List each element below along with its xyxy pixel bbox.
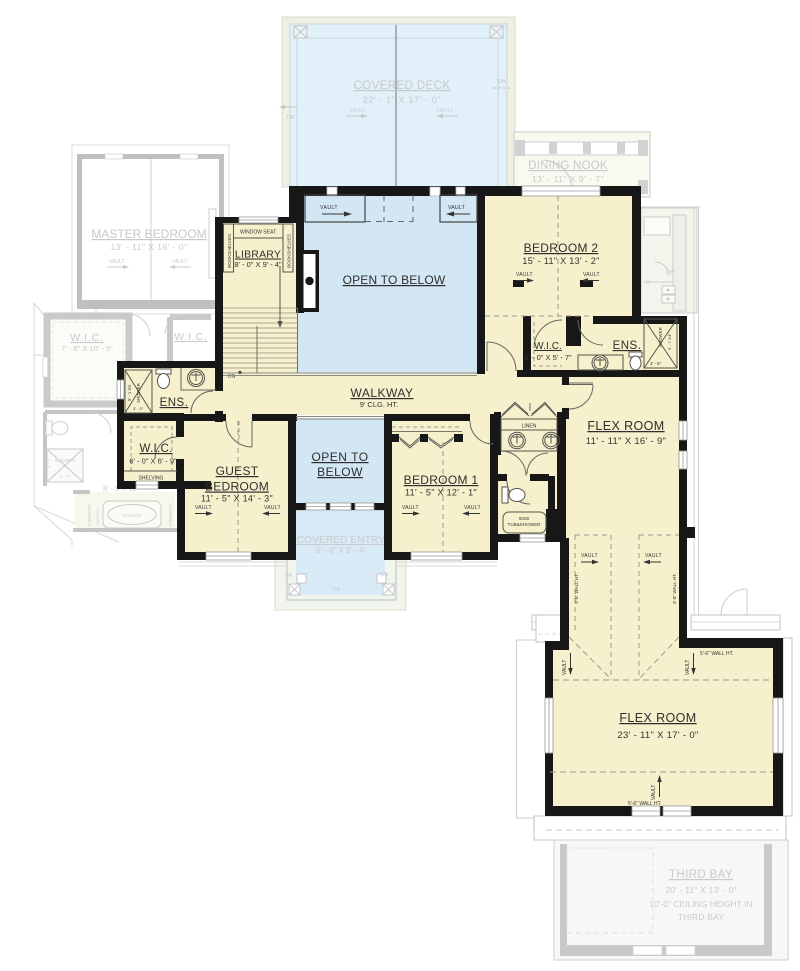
svg-text:LINEN: LINEN	[522, 424, 537, 430]
svg-text:VAULT: VAULT	[264, 505, 281, 511]
svg-text:LIBRARY: LIBRARY	[235, 249, 281, 261]
svg-text:3' - 0": 3' - 0"	[133, 406, 144, 411]
svg-text:THIRD BAY: THIRD BAY	[669, 869, 733, 881]
svg-text:DINING NOOK: DINING NOOK	[528, 160, 608, 172]
svg-text:FLEX ROOM: FLEX ROOM	[619, 711, 696, 725]
svg-text:5'-6" WALL HT.: 5'-6" WALL HT.	[628, 801, 661, 807]
svg-text:W.I.C.: W.I.C.	[70, 332, 103, 344]
svg-text:3' - 6": 3' - 6"	[650, 361, 662, 366]
svg-text:9' CLG. HT.: 9' CLG. HT.	[360, 400, 399, 409]
svg-text:VAULT: VAULT	[562, 660, 568, 675]
svg-text:11' - 5" X 12' - 1": 11' - 5" X 12' - 1"	[405, 488, 477, 498]
svg-text:13' - 11" X 9' - 7": 13' - 11" X 9' - 7"	[532, 174, 604, 184]
svg-text:MASTER BEDROOM: MASTER BEDROOM	[91, 227, 206, 241]
svg-text:DW: DW	[666, 270, 675, 276]
svg-text:W.I.C.: W.I.C.	[534, 341, 562, 352]
svg-text:BEDROOM 1: BEDROOM 1	[404, 473, 479, 487]
svg-text:GUEST: GUEST	[216, 464, 259, 478]
svg-text:4' - 5": 4' - 5"	[46, 457, 51, 468]
svg-text:VAULT: VAULT	[320, 205, 338, 211]
svg-text:11' - 5" X 14' - 3": 11' - 5" X 14' - 3"	[201, 494, 273, 504]
svg-text:DN: DN	[285, 573, 293, 579]
svg-text:ENS.: ENS.	[613, 340, 642, 352]
svg-text:- 0": - 0"	[643, 280, 651, 286]
svg-text:CABINETRY: CABINETRY	[87, 503, 92, 527]
svg-text:6' - 0" X 6' - 9": 6' - 0" X 6' - 9"	[129, 457, 177, 466]
svg-text:DN: DN	[333, 587, 341, 593]
svg-text:20' - 11" X 13' - 0": 20' - 11" X 13' - 0"	[665, 885, 736, 895]
svg-text:OPEN TO BELOW: OPEN TO BELOW	[343, 273, 446, 287]
svg-text:10'-0" CEILING HEIGHT IN: 10'-0" CEILING HEIGHT IN	[649, 899, 752, 909]
svg-text:5' - 7 1/4": 5' - 7 1/4"	[667, 333, 672, 350]
svg-text:5'-6" WALL HT.: 5'-6" WALL HT.	[700, 651, 733, 657]
svg-text:SHOWER: SHOWER	[658, 327, 663, 347]
svg-text:VAULT: VAULT	[581, 553, 598, 559]
svg-text:BOOKSHELVES: BOOKSHELVES	[287, 234, 292, 268]
svg-text:VAULT: VAULT	[516, 272, 533, 278]
svg-text:THIRD BAY: THIRD BAY	[678, 912, 725, 922]
svg-text:3'-8" WALL HT.: 3'-8" WALL HT.	[672, 573, 677, 604]
svg-text:VAULT: VAULT	[349, 108, 367, 114]
svg-text:VAULT: VAULT	[448, 205, 466, 211]
svg-text:SHOWER: SHOWER	[55, 458, 76, 463]
svg-text:22' - 1" X 17' - 0": 22' - 1" X 17' - 0"	[363, 95, 441, 105]
svg-text:3'-8" WALL HT.: 3'-8" WALL HT.	[574, 573, 579, 604]
svg-text:DRESSER: DRESSER	[46, 352, 51, 375]
svg-text:VAULT: VAULT	[645, 553, 662, 559]
svg-text:15' - 11" X 13' - 2": 15' - 11" X 13' - 2"	[522, 256, 599, 266]
svg-text:SOAKER: SOAKER	[122, 513, 142, 518]
svg-text:5' - 0" X 5' - 7": 5' - 0" X 5' - 7"	[524, 353, 572, 362]
svg-text:BELOW: BELOW	[317, 465, 363, 479]
svg-text:WALKWAY: WALKWAY	[350, 386, 413, 400]
svg-text:SHOWER: SHOWER	[136, 383, 141, 403]
svg-text:9' - 6" X 9' - 4": 9' - 6" X 9' - 4"	[316, 546, 367, 555]
svg-text:BOOKSHELVES: BOOKSHELVES	[227, 234, 232, 268]
svg-text:VAULT: VAULT	[172, 259, 187, 265]
svg-text:VAULT: VAULT	[464, 505, 481, 511]
svg-text:VAULT: VAULT	[436, 108, 454, 114]
svg-text:5' - 1 3/4: 5' - 1 3/4	[127, 384, 132, 401]
svg-text:BEDROOM 2: BEDROOM 2	[524, 241, 599, 255]
svg-text:VAULT: VAULT	[195, 505, 212, 511]
svg-text:7' - 6" X 10' - 9": 7' - 6" X 10' - 9"	[61, 344, 113, 353]
svg-text:ENS.: ENS.	[160, 397, 189, 409]
svg-text:VAULT: VAULT	[402, 505, 419, 511]
svg-text:BEDROOM: BEDROOM	[205, 480, 269, 494]
svg-text:W.I.C.: W.I.C.	[174, 331, 207, 343]
svg-text:VAULT: VAULT	[651, 785, 657, 800]
svg-text:DN: DN	[381, 572, 389, 578]
svg-text:DN: DN	[287, 115, 295, 121]
svg-text:13' - 11" X 16' - 0": 13' - 11" X 16' - 0"	[110, 242, 187, 252]
svg-text:DN: DN	[498, 79, 506, 85]
svg-text:OPEN TO: OPEN TO	[311, 450, 368, 464]
svg-text:FLEX ROOM: FLEX ROOM	[587, 419, 664, 433]
svg-text:VAULT: VAULT	[685, 660, 691, 675]
svg-text:DN: DN	[228, 374, 236, 380]
svg-text:11' - 11" X 16' - 9": 11' - 11" X 16' - 9"	[586, 436, 666, 447]
svg-text:VAULT: VAULT	[109, 259, 124, 265]
svg-text:23' - 11" X 17' - 0": 23' - 11" X 17' - 0"	[617, 730, 698, 741]
svg-text:CABINETRY: CABINETRY	[168, 503, 173, 527]
svg-text:5026: 5026	[519, 516, 530, 521]
svg-text:COVERED DECK: COVERED DECK	[354, 80, 451, 92]
svg-text:(VANITY): (VANITY)	[95, 508, 100, 525]
svg-text:5' - 3": 5' - 3"	[60, 474, 71, 479]
svg-text:WINDOW SEAT: WINDOW SEAT	[240, 230, 276, 236]
svg-text:VAULT: VAULT	[583, 272, 600, 278]
svg-text:COVERED ENTRY: COVERED ENTRY	[297, 535, 386, 546]
svg-text:TUB&SHOWER: TUB&SHOWER	[508, 522, 542, 527]
svg-text:W.I.C.: W.I.C.	[139, 443, 172, 455]
svg-text:8' - 0" X 9' - 4": 8' - 0" X 9' - 4"	[234, 260, 282, 269]
svg-text:SHELVING: SHELVING	[139, 476, 164, 482]
